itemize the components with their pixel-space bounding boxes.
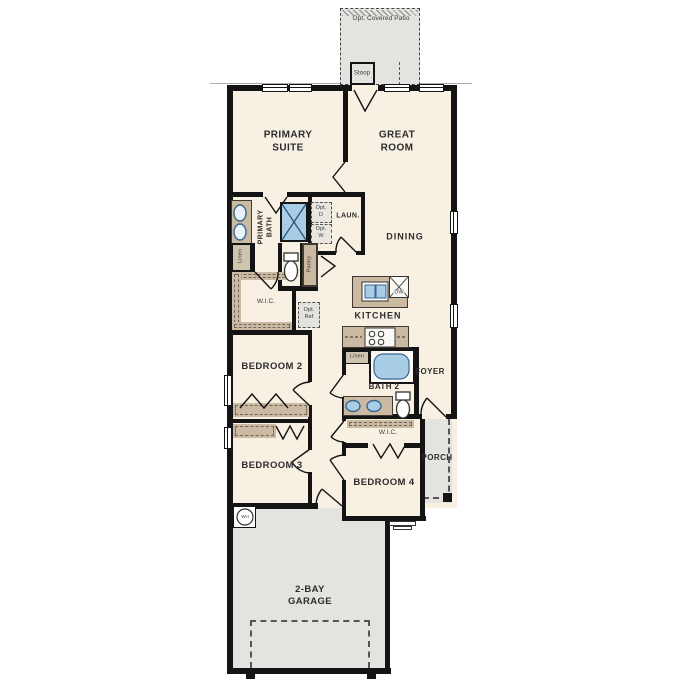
room-label-wic-bedroom4: W.I.C.	[379, 429, 397, 437]
room-label-foyer: FOYER	[415, 367, 445, 377]
label-dishwasher: DW	[393, 290, 404, 297]
window	[419, 84, 444, 92]
wall-segment	[342, 443, 368, 448]
room-label-garage: 2-BAY GARAGE	[278, 584, 342, 608]
label-water-heater: WH	[241, 514, 249, 520]
wall-segment	[385, 516, 390, 674]
label-linen-primary: Linen	[238, 249, 245, 263]
wall-segment	[308, 334, 312, 382]
wall-segment	[356, 251, 365, 255]
window	[289, 84, 312, 92]
window	[450, 211, 458, 234]
room-label-primary-suite: PRIMARY SUITE	[256, 130, 320, 155]
patio-inner-dash	[399, 62, 401, 85]
room-label-laundry: LAUN.	[336, 213, 359, 222]
room-label-stoop: Stoop	[354, 70, 370, 78]
room-label-great-room: GREAT ROOM	[372, 130, 422, 155]
window	[384, 84, 410, 92]
room-label-kitchen: KITCHEN	[355, 310, 402, 321]
wall-segment	[287, 192, 365, 197]
kitchen-counter	[342, 326, 409, 348]
bedroom3-closet-shelf	[233, 424, 276, 438]
porch-column	[443, 493, 452, 502]
room-label-bedroom4: BEDROOM 4	[353, 477, 414, 489]
wall-segment	[227, 330, 312, 335]
bath2-vanity	[343, 396, 393, 416]
label-pantry: Pantry	[307, 256, 314, 273]
garage-door-dash	[250, 620, 370, 668]
room-label-primary-bath: PRIMARY BATH	[257, 203, 275, 251]
room-label-patio: Opt. Covered Patio	[352, 15, 409, 23]
wall-segment	[446, 414, 457, 419]
wall-segment	[343, 85, 348, 162]
wall-segment	[227, 192, 263, 197]
wall-segment	[246, 674, 255, 679]
rear-step	[393, 526, 412, 530]
window	[224, 375, 232, 406]
wall-segment	[292, 286, 296, 334]
window	[450, 304, 458, 328]
window	[224, 427, 232, 449]
window	[262, 84, 288, 92]
wic-primary-shelf	[232, 272, 292, 280]
floor-plan: Opt. Covered Patio Stoop PRIMARY SUITE G…	[0, 0, 687, 687]
wic-primary-shelf	[232, 322, 292, 330]
label-opt-washer: Opt. W	[313, 226, 329, 240]
room-label-wic-primary: W.I.C.	[257, 298, 275, 306]
wall-segment	[361, 192, 365, 255]
label-linen-bath2: Linen	[350, 354, 364, 361]
wall-segment	[367, 674, 376, 679]
wall-segment	[278, 243, 282, 291]
wall-segment	[420, 419, 425, 521]
label-opt-ref: Opt. Ref	[300, 307, 318, 321]
bedroom2-closet-shelf	[233, 403, 309, 417]
room-label-bedroom3: BEDROOM 3	[241, 460, 302, 472]
wall-segment	[451, 85, 457, 419]
room-label-bath2: BATH 2	[369, 382, 400, 392]
wall-segment	[414, 347, 419, 419]
primary-bath-vanity	[231, 200, 252, 244]
shower	[280, 202, 308, 242]
wall-segment	[342, 480, 346, 521]
room-label-dining: DINING	[386, 231, 424, 242]
room-label-porch: PORCH	[422, 453, 453, 463]
wic-bedroom4-shelf	[347, 420, 414, 428]
wall-segment	[227, 419, 312, 423]
label-opt-dryer: Opt. D	[313, 205, 329, 219]
room-label-bedroom2: BEDROOM 2	[241, 361, 302, 373]
